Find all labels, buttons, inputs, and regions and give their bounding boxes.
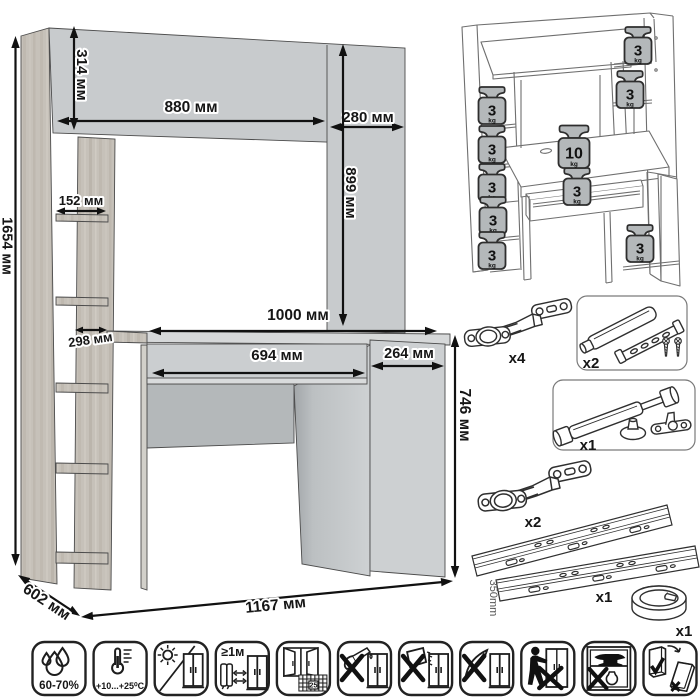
svg-text:x4: x4 bbox=[509, 350, 526, 367]
svg-text:264 мм: 264 мм bbox=[384, 346, 434, 362]
svg-text:899 мм: 899 мм bbox=[342, 167, 359, 218]
svg-text:x2: x2 bbox=[525, 514, 542, 531]
svg-text:x1: x1 bbox=[596, 589, 613, 606]
svg-text:1000 мм: 1000 мм bbox=[267, 307, 329, 324]
svg-text:152 мм: 152 мм bbox=[59, 193, 104, 208]
svg-text:1654 мм: 1654 мм bbox=[0, 217, 15, 275]
svg-text:280 мм: 280 мм bbox=[342, 109, 393, 126]
svg-text:602 мм: 602 мм bbox=[20, 581, 74, 624]
svg-text:+10...+25⁰C: +10...+25⁰C bbox=[96, 681, 145, 691]
svg-text:x2: x2 bbox=[583, 355, 600, 372]
svg-text:694 мм: 694 мм bbox=[251, 347, 302, 364]
svg-text:60-70%: 60-70% bbox=[39, 680, 79, 692]
svg-text:350mm: 350mm bbox=[487, 580, 499, 617]
svg-text:≥1м: ≥1м bbox=[221, 645, 244, 659]
svg-text:x1: x1 bbox=[580, 437, 597, 454]
svg-text:746 мм: 746 мм bbox=[456, 388, 473, 441]
svg-text:25: 25 bbox=[309, 681, 317, 690]
svg-text:880 мм: 880 мм bbox=[164, 99, 217, 116]
svg-text:1167 мм: 1167 мм bbox=[244, 594, 306, 617]
svg-text:x1: x1 bbox=[676, 623, 693, 640]
svg-text:314 мм: 314 мм bbox=[73, 49, 90, 100]
